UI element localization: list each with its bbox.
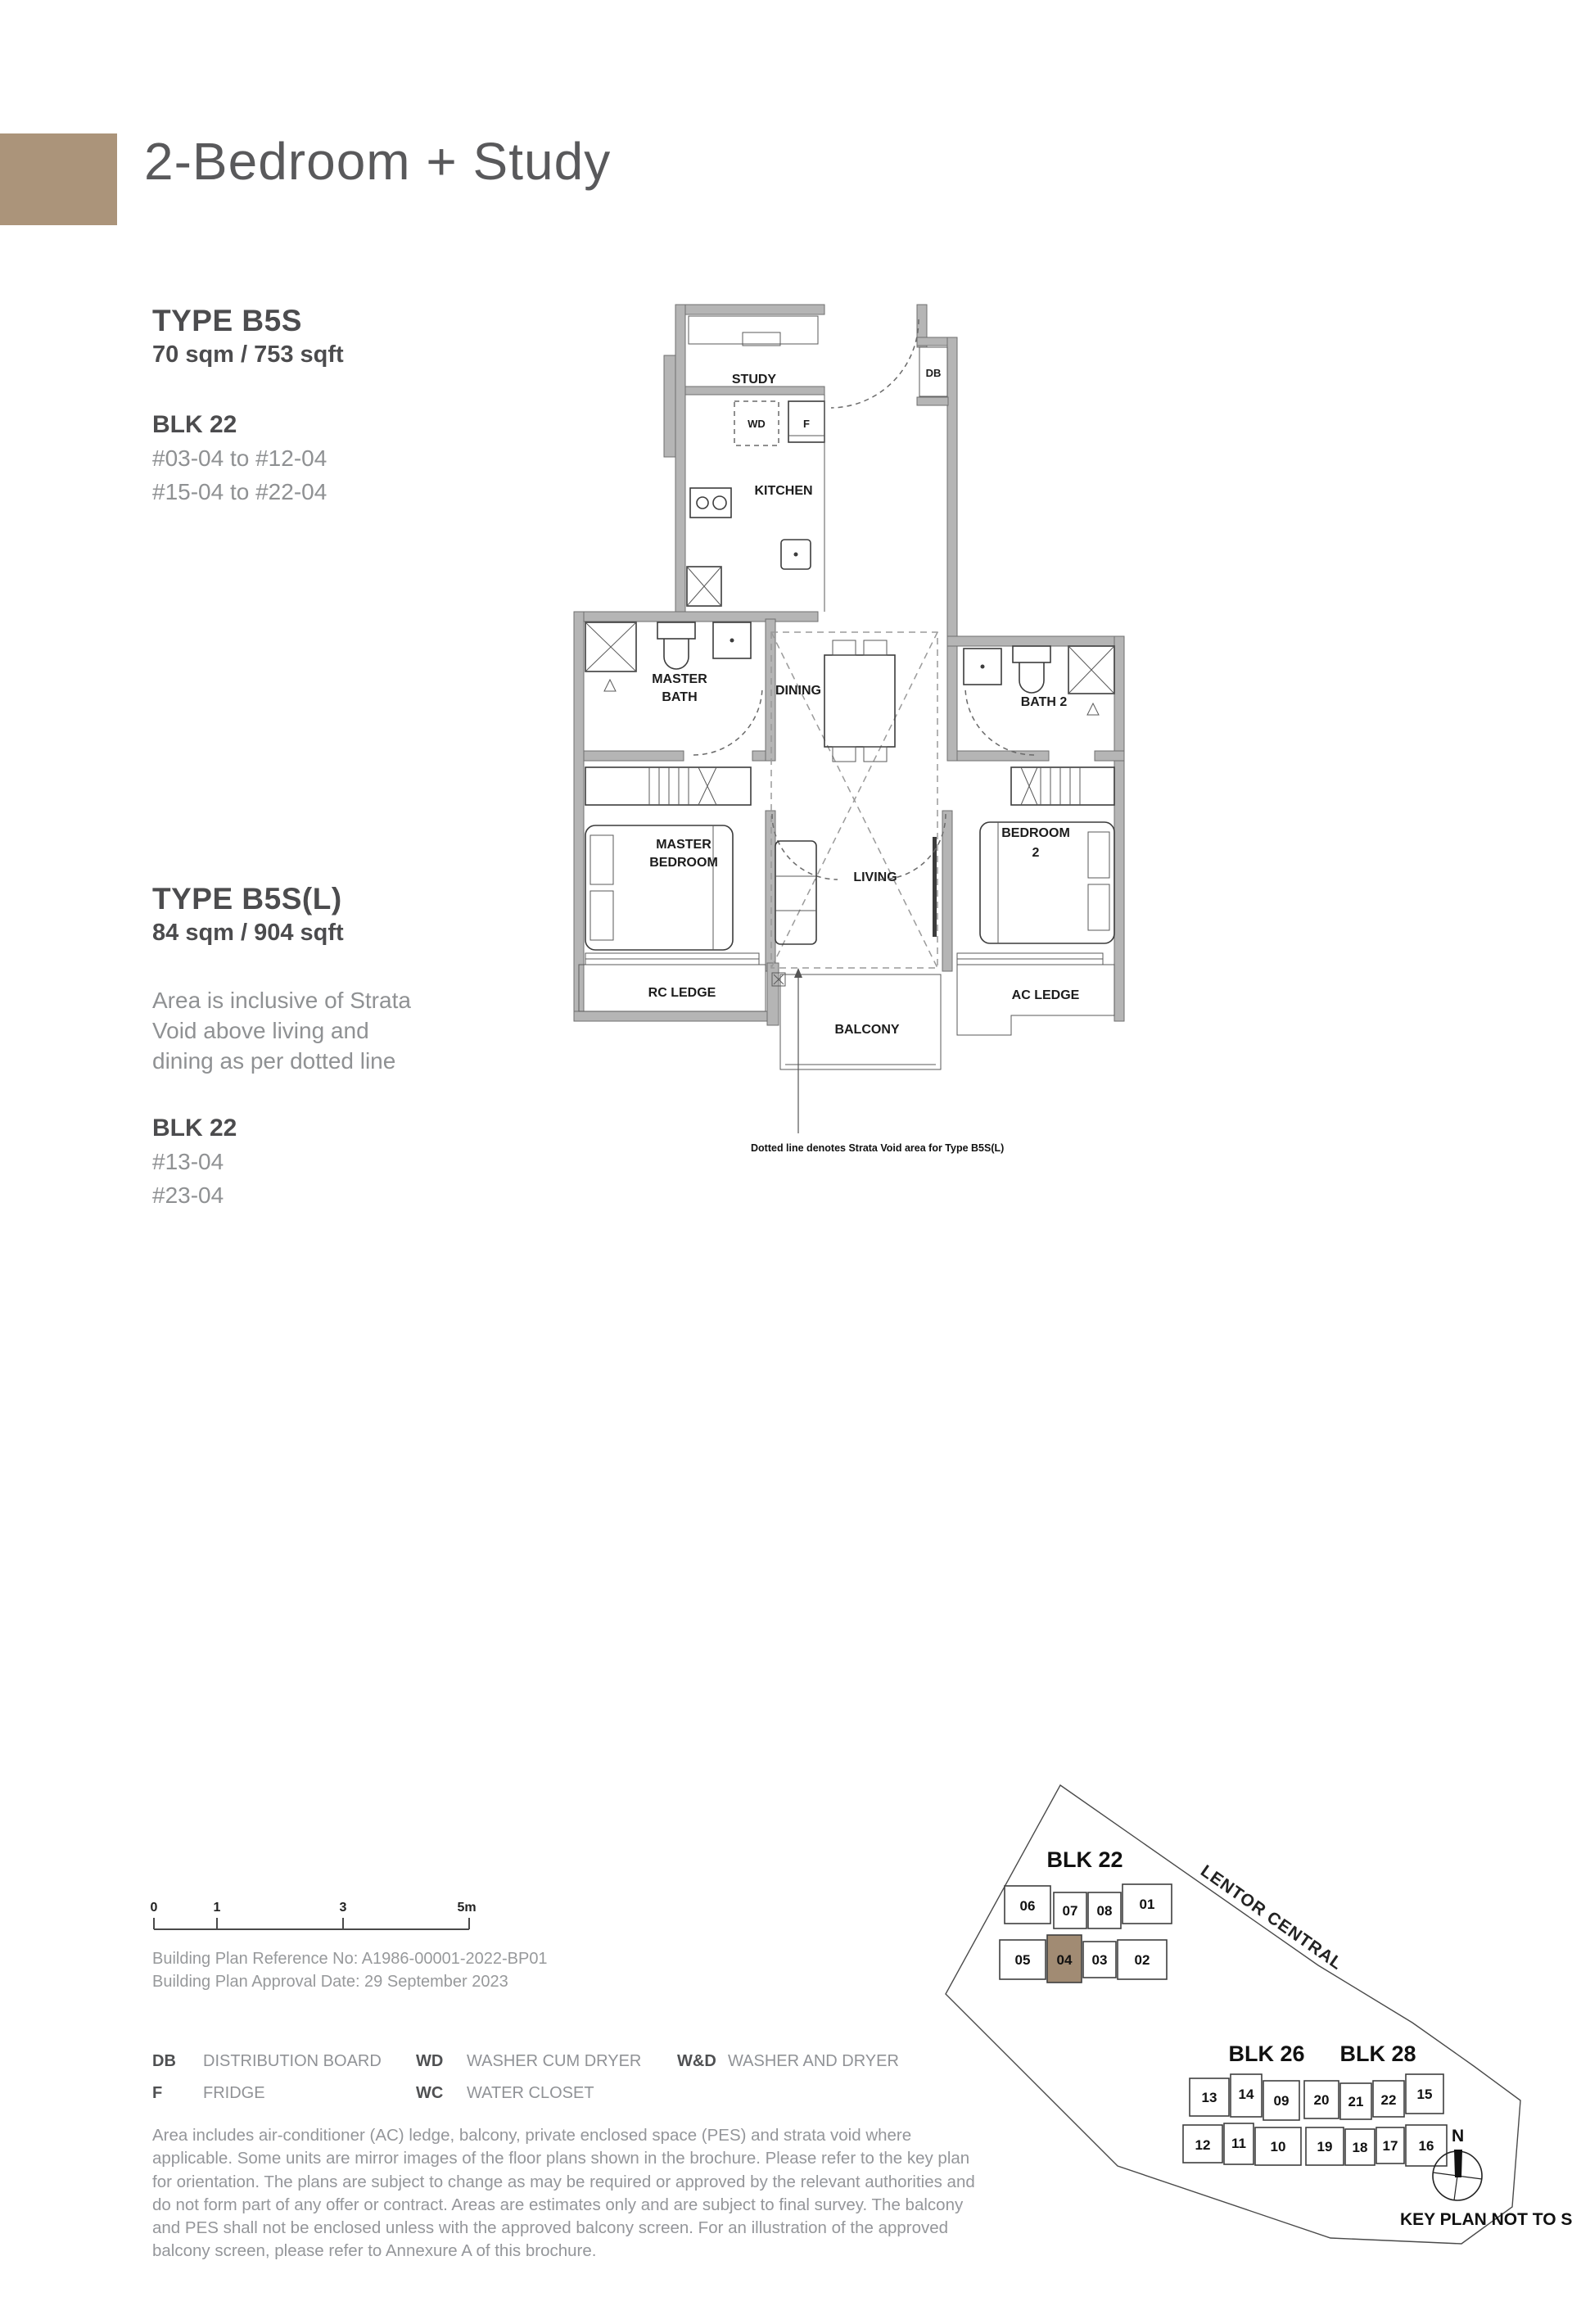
svg-text:21: 21	[1348, 2094, 1364, 2109]
legend-wd-label: WASHER CUM DRYER	[467, 2052, 641, 2071]
brochure-page: 2-Bedroom + Study TYPE B5S 70 sqm / 753 …	[0, 0, 1572, 2324]
svg-text:02: 02	[1135, 1952, 1150, 1968]
type-b5s-name: TYPE B5S	[152, 305, 447, 338]
svg-text:13: 13	[1202, 2090, 1217, 2105]
blk28-units: 20 21 22 15 19 18 17 16	[1304, 2074, 1447, 2166]
keyplan-unit: 02	[1118, 1940, 1167, 1979]
type-b5sl-name: TYPE B5S(L)	[152, 883, 447, 916]
svg-text:06: 06	[1020, 1898, 1036, 1914]
keyplan-unit-highlighted: 04	[1047, 1935, 1082, 1983]
legend-wc: WC WATER CLOSET	[416, 2084, 641, 2103]
svg-text:05: 05	[1015, 1952, 1031, 1968]
svg-text:19: 19	[1317, 2139, 1333, 2154]
svg-text:20: 20	[1314, 2092, 1330, 2108]
study-desk	[689, 316, 818, 346]
master-bedroom-door-arc	[772, 814, 838, 879]
master-bath-label-2: BATH	[662, 690, 697, 704]
bedroom2-label-1: BEDROOM	[1001, 826, 1070, 840]
keyplan-unit: 17	[1376, 2127, 1404, 2163]
blk26-units: 13 14 09 12 11 10	[1183, 2074, 1301, 2165]
type-b5sl-strata-note: Area is inclusive of Strata Void above l…	[152, 986, 414, 1077]
legend-fridge: F FRIDGE	[152, 2084, 382, 2103]
disclaimer-text: Area includes air-conditioner (AC) ledge…	[152, 2124, 983, 2263]
keyplan-unit: 08	[1088, 1892, 1121, 1928]
type-b5s-floors-1: #03-04 to #12-04	[152, 444, 447, 472]
svg-text:03: 03	[1092, 1952, 1108, 1968]
living-label: LIVING	[853, 870, 897, 884]
keyplan-unit: 10	[1255, 2127, 1301, 2165]
keyplan-unit: 06	[1005, 1886, 1050, 1924]
legend-wnd-key: W&D	[677, 2052, 728, 2071]
road-label: LENTOR CENTRAL	[1197, 1861, 1346, 1974]
wd-label: WD	[748, 418, 766, 430]
legend-db: DB DISTRIBUTION BOARD	[152, 2052, 382, 2071]
master-bath-sink	[713, 622, 751, 658]
living-sofa	[775, 841, 816, 944]
scale-tick-1: 1	[214, 1901, 221, 1915]
blk22-units: 06 07 08 01 05 04 03 02	[1000, 1884, 1172, 1983]
bath2-sink	[964, 649, 1001, 685]
unit-info-b5s: TYPE B5S 70 sqm / 753 sqft BLK 22 #03-04…	[152, 305, 447, 506]
type-b5sl-block: BLK 22	[152, 1115, 447, 1142]
bath2-shower	[1068, 646, 1114, 715]
master-bedroom-label-2: BEDROOM	[649, 856, 718, 870]
db-label: DB	[926, 367, 942, 379]
dining-label: DINING	[775, 684, 821, 698]
master-bedroom-label-1: MASTER	[656, 838, 711, 852]
scale-tick-0: 0	[151, 1901, 158, 1915]
legend-wc-label: WATER CLOSET	[467, 2084, 594, 2103]
svg-text:10: 10	[1271, 2139, 1286, 2154]
legend-wnd-label: WASHER AND DRYER	[728, 2052, 899, 2071]
kitchen-label: KITCHEN	[754, 484, 812, 498]
floor-plan: STUDY DB WD F KITCHEN	[553, 305, 1163, 1177]
legend-db-key: DB	[152, 2052, 203, 2071]
type-b5sl-area: 84 sqm / 904 sqft	[152, 920, 447, 947]
scale-tick-3: 3	[340, 1901, 347, 1915]
keyplan-unit: 20	[1304, 2081, 1339, 2118]
blk28-title: BLK 28	[1339, 2041, 1416, 2066]
legend-wd: WD WASHER CUM DRYER	[416, 2052, 641, 2071]
keyplan-unit: 05	[1000, 1940, 1046, 1979]
scale-bar: 0 1 3 5m	[147, 1897, 475, 1942]
svg-text:22: 22	[1381, 2092, 1397, 2108]
type-b5sl-floors-1: #13-04	[152, 1147, 447, 1176]
keyplan-unit: 15	[1406, 2074, 1443, 2114]
keyplan-unit: 16	[1406, 2125, 1447, 2166]
svg-text:01: 01	[1140, 1897, 1155, 1912]
balcony-label: BALCONY	[834, 1023, 899, 1037]
keyplan-unit: 14	[1231, 2074, 1262, 2117]
rc-ledge	[579, 953, 766, 1011]
keyplan-unit: 19	[1306, 2127, 1344, 2165]
study-label: STUDY	[732, 373, 777, 387]
bath2-toilet	[1013, 646, 1050, 693]
service-shaft	[687, 567, 721, 606]
keyplan-unit: 01	[1123, 1884, 1172, 1924]
legend-fridge-key: F	[152, 2084, 203, 2103]
balcony	[772, 973, 941, 1069]
keyplan-unit: 21	[1340, 2083, 1371, 2119]
keyplan-unit: 13	[1190, 2078, 1229, 2116]
master-bath-shower	[585, 622, 636, 691]
svg-text:14: 14	[1239, 2087, 1254, 2102]
strata-void-outline	[771, 632, 937, 968]
type-b5s-block: BLK 22	[152, 411, 447, 439]
svg-text:07: 07	[1063, 1903, 1078, 1919]
legend-fridge-label: FRIDGE	[203, 2084, 265, 2103]
page-title: 2-Bedroom + Study	[144, 131, 611, 192]
svg-text:08: 08	[1097, 1903, 1113, 1919]
keyplan-unit: 12	[1183, 2125, 1222, 2163]
legend-wnd: W&D WASHER AND DRYER	[677, 2052, 899, 2071]
key-plan: LENTOR CENTRAL BLK 22 06 07 08 01 05 04 …	[929, 1757, 1572, 2305]
master-wardrobe	[585, 767, 751, 805]
scale-tick-5m: 5m	[457, 1901, 476, 1915]
legend-wd-key: WD	[416, 2052, 467, 2071]
kitchen-hob	[690, 488, 731, 518]
blk26-title: BLK 26	[1228, 2041, 1304, 2066]
keyplan-unit: 22	[1373, 2081, 1404, 2117]
type-b5sl-floors-2: #23-04	[152, 1181, 447, 1209]
svg-text:16: 16	[1419, 2138, 1434, 2154]
svg-text:12: 12	[1195, 2137, 1211, 2153]
ac-ledge-label: AC LEDGE	[1012, 988, 1080, 1002]
keyplan-unit: 11	[1224, 2123, 1254, 2164]
keyplan-unit: 03	[1083, 1942, 1116, 1978]
site-boundary	[946, 1785, 1520, 2244]
entry-door-arc	[831, 319, 919, 408]
svg-text:11: 11	[1231, 2136, 1246, 2151]
north-label: N	[1452, 2127, 1464, 2145]
type-b5s-area: 70 sqm / 753 sqft	[152, 341, 447, 368]
svg-text:04: 04	[1057, 1952, 1073, 1968]
blk22-title: BLK 22	[1046, 1847, 1123, 1872]
strata-void-note: Dotted line denotes Strata Void area for…	[751, 1142, 1004, 1154]
master-bath-toilet	[657, 622, 695, 669]
type-b5s-floors-2: #15-04 to #22-04	[152, 477, 447, 506]
fridge-label: F	[803, 418, 810, 430]
svg-text:17: 17	[1383, 2138, 1398, 2154]
keyplan-unit: 07	[1054, 1892, 1086, 1928]
bath2-label: BATH 2	[1021, 695, 1068, 709]
legend-db-label: DISTRIBUTION BOARD	[203, 2052, 382, 2071]
building-plan-reference-no: Building Plan Reference No: A1986-00001-…	[152, 1947, 548, 1970]
title-accent-block	[0, 133, 117, 225]
building-plan-reference: Building Plan Reference No: A1986-00001-…	[152, 1947, 548, 1993]
svg-text:15: 15	[1417, 2087, 1433, 2102]
keyplan-caption: KEY PLAN NOT TO SCALE	[1400, 2210, 1572, 2229]
svg-text:09: 09	[1274, 2093, 1290, 2109]
keyplan-unit: 18	[1345, 2129, 1375, 2165]
building-plan-approval-date: Building Plan Approval Date: 29 Septembe…	[152, 1970, 548, 1993]
bedroom2-bed	[980, 822, 1114, 943]
master-bath-door-arc	[693, 686, 762, 755]
master-bath-label-1: MASTER	[652, 672, 707, 686]
strata-void-leader	[794, 968, 802, 1133]
rc-ledge-label: RC LEDGE	[648, 986, 716, 1000]
bedroom2-label-2: 2	[1032, 846, 1040, 860]
dining-table	[824, 640, 895, 762]
unit-info-b5sl: TYPE B5S(L) 84 sqm / 904 sqft Area is in…	[152, 883, 447, 1209]
svg-text:18: 18	[1353, 2140, 1368, 2155]
legend-wc-key: WC	[416, 2084, 467, 2103]
floor-plan-walls	[574, 305, 1124, 1025]
keyplan-unit: 09	[1263, 2081, 1299, 2120]
bedroom2-wardrobe	[1011, 767, 1114, 805]
